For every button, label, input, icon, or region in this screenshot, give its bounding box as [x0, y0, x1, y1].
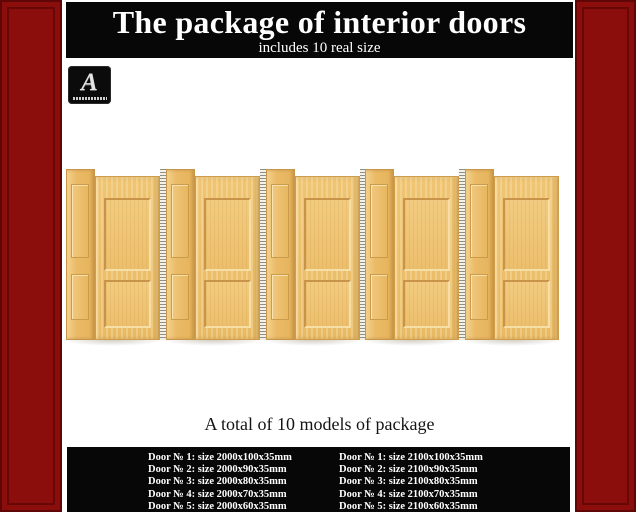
door-group — [166, 169, 260, 340]
spec-item: Door № 5: size 2100x60x35mm — [339, 501, 483, 512]
left-frame-inset — [7, 7, 55, 505]
brand-logo: A — [68, 66, 111, 104]
door-panel — [71, 184, 89, 258]
specs-banner: Door № 1: size 2000x100x35mm Door № 2: s… — [67, 447, 570, 512]
doors-render-image — [66, 169, 573, 359]
door-panel — [304, 198, 351, 271]
back-door — [365, 169, 394, 340]
spec-item: Door № 2: size 2000x90x35mm — [148, 464, 292, 476]
door-group — [465, 169, 559, 340]
front-door — [295, 176, 360, 340]
back-door — [266, 169, 295, 340]
spec-item: Door № 5: size 2000x60x35mm — [148, 501, 292, 512]
logo-letter: A — [81, 70, 98, 95]
left-red-frame — [0, 0, 62, 512]
spec-list-right: Door № 1: size 2100x100x35mm Door № 2: s… — [339, 452, 483, 512]
door-group — [66, 169, 160, 340]
back-door — [166, 169, 195, 340]
door-panel — [271, 184, 289, 258]
back-door — [66, 169, 95, 340]
page: The package of interior doors includes 1… — [0, 0, 636, 512]
right-red-frame — [575, 0, 636, 512]
door-panel — [71, 274, 89, 320]
door-panel — [204, 280, 251, 328]
spec-item: Door № 3: size 2100x80x35mm — [339, 476, 483, 488]
door-panel — [104, 198, 151, 271]
door-panel — [503, 280, 550, 328]
door-panel — [271, 274, 289, 320]
summary-text: A total of 10 models of package — [66, 414, 573, 435]
door-panel — [171, 184, 189, 258]
back-door — [465, 169, 494, 340]
front-door — [95, 176, 160, 340]
page-title: The package of interior doors — [66, 4, 573, 40]
door-panel — [470, 184, 488, 258]
spec-list-left: Door № 1: size 2000x100x35mm Door № 2: s… — [148, 452, 292, 512]
header-banner: The package of interior doors includes 1… — [66, 2, 573, 58]
door-panel — [370, 274, 388, 320]
door-panel — [503, 198, 550, 271]
spec-item: Door № 4: size 2100x70x35mm — [339, 489, 483, 501]
door-panel — [171, 274, 189, 320]
door-panel — [403, 280, 450, 328]
door-panel — [403, 198, 450, 271]
door-group — [365, 169, 459, 340]
door-group — [266, 169, 360, 340]
door-panel — [370, 184, 388, 258]
door-panel — [204, 198, 251, 271]
front-door — [494, 176, 559, 340]
header-subtitle: includes 10 real size — [66, 40, 573, 56]
door-panel — [470, 274, 488, 320]
spec-item: Door № 1: size 2100x100x35mm — [339, 452, 483, 464]
door-panel — [304, 280, 351, 328]
front-door — [394, 176, 459, 340]
door-panel — [104, 280, 151, 328]
front-door — [195, 176, 260, 340]
right-frame-inset — [582, 7, 629, 505]
logo-tagline-microtext — [73, 97, 107, 100]
spec-item: Door № 2: size 2100x90x35mm — [339, 464, 483, 476]
spec-item: Door № 1: size 2000x100x35mm — [148, 452, 292, 464]
spec-item: Door № 3: size 2000x80x35mm — [148, 476, 292, 488]
spec-item: Door № 4: size 2000x70x35mm — [148, 489, 292, 501]
